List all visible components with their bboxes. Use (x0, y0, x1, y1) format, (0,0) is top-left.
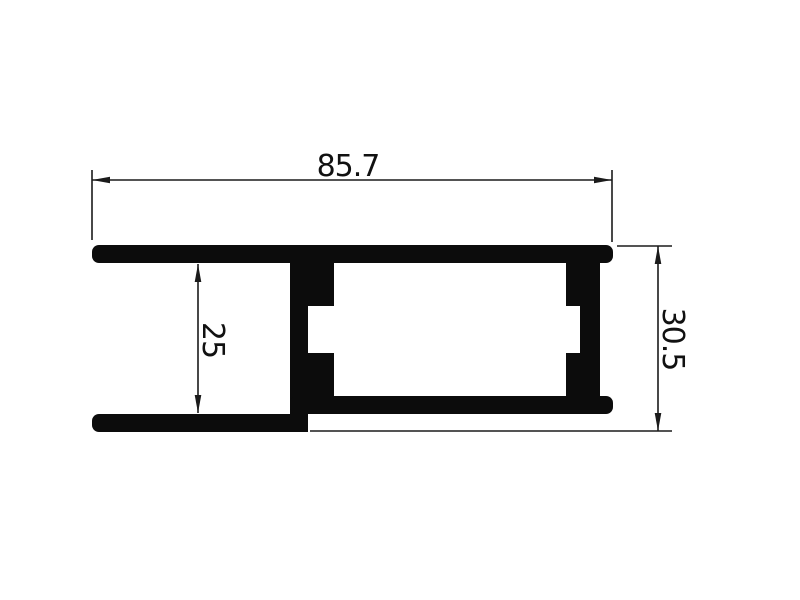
profile-bottom-left-flange (92, 414, 308, 432)
profile-box-bottom-wall (290, 396, 613, 414)
arrowhead-left-icon (92, 177, 110, 184)
arrowhead-up-icon (655, 246, 662, 264)
dimension-overall-width-label: 85.7 (317, 149, 380, 184)
dimension-channel-height: 25 (195, 264, 230, 413)
arrowhead-right-icon (594, 177, 612, 184)
arrowhead-down-icon (195, 395, 202, 413)
arrowhead-up-icon (195, 264, 202, 282)
profile-top-flange (92, 245, 613, 263)
dimension-channel-height-label: 25 (195, 322, 230, 358)
arrowhead-down-icon (655, 413, 662, 431)
profile-right-wall (580, 258, 600, 414)
profile-left-tab-top (306, 263, 334, 306)
profile-right-tab-top (566, 263, 580, 306)
profile-drawing: 85.7 25 30.5 (0, 0, 800, 600)
dimension-overall-height-label: 30.5 (655, 308, 690, 371)
profile-left-tab-bottom (306, 353, 334, 396)
profile-right-tab-bottom (566, 353, 580, 396)
profile-shape (92, 245, 613, 432)
drawing-canvas: 85.7 25 30.5 (0, 0, 800, 600)
dimension-overall-width: 85.7 (92, 149, 612, 242)
